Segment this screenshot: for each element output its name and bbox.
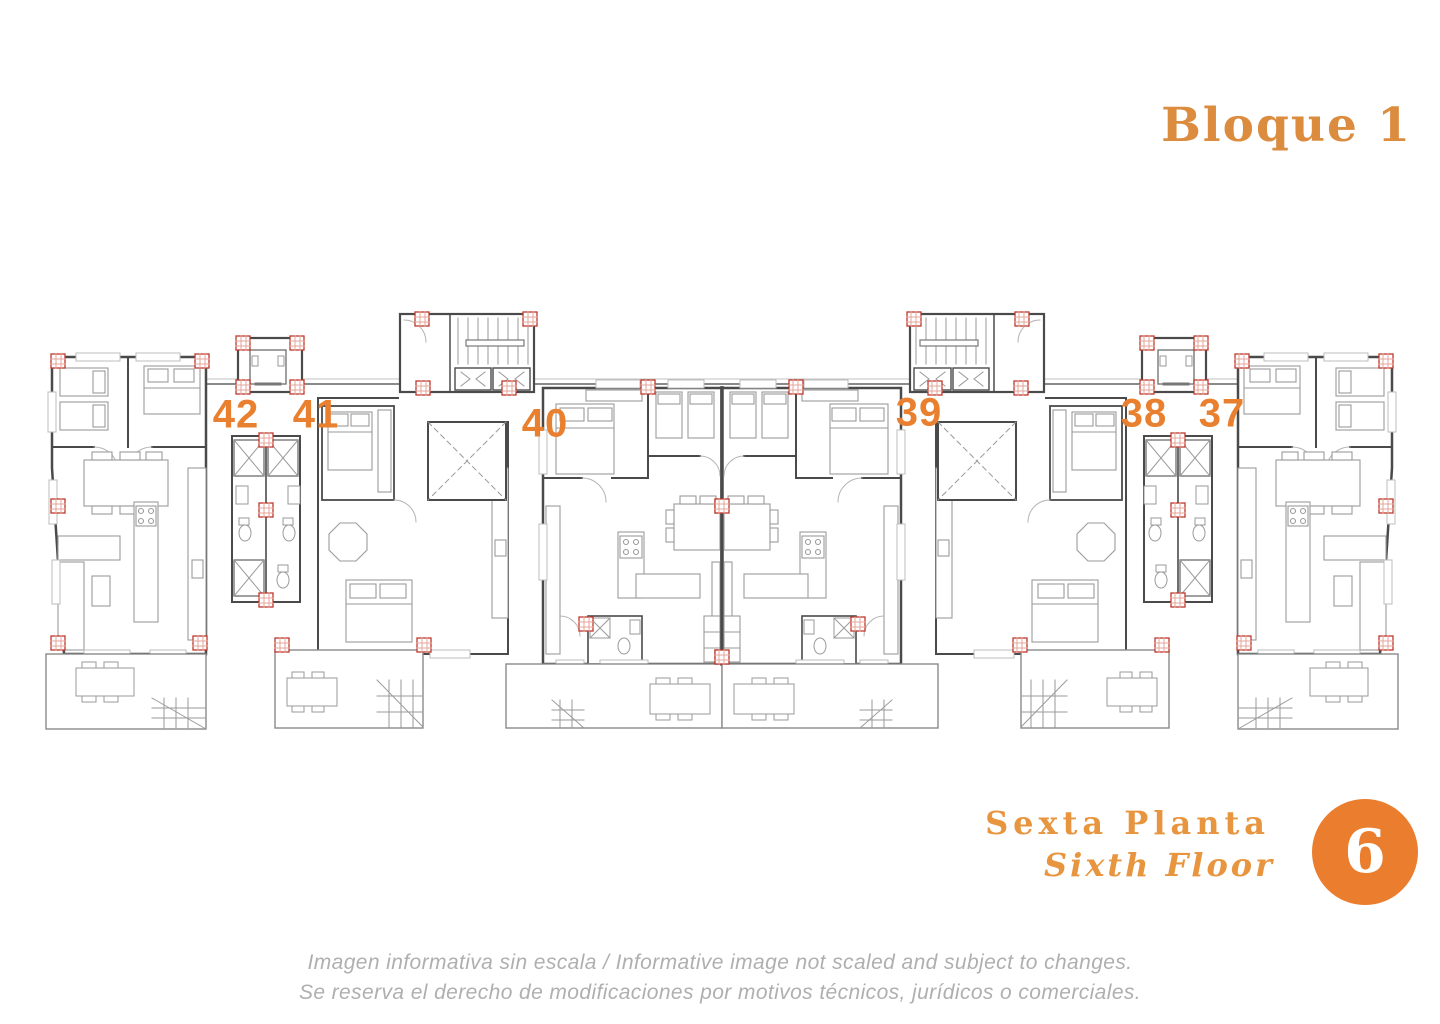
plan-right-half: [715, 312, 1398, 729]
disclaimer: Imagen informativa sin escala / Informat…: [0, 948, 1440, 1008]
plan-left-half: [46, 312, 729, 729]
floor-label-es: Sexta Planta: [985, 804, 1270, 842]
terrace-unit-40: [506, 664, 722, 728]
terrace-unit-42: [46, 654, 206, 729]
page: Bloque 1: [0, 0, 1440, 1024]
unit-label-39: 39: [896, 391, 943, 436]
bathroom-cluster-left: [232, 436, 300, 602]
floor-number: 6: [1344, 817, 1386, 887]
unit-label-37: 37: [1199, 392, 1246, 437]
unit-42-wing: [48, 353, 206, 658]
floor-number-badge: 6: [1312, 799, 1418, 905]
unit-label-41: 41: [293, 393, 340, 438]
floor-label-en: Sixth Floor: [1044, 846, 1275, 884]
elevator-core-left: [236, 336, 304, 394]
unit-label-42: 42: [213, 393, 260, 438]
unit-41: [318, 398, 508, 658]
disclaimer-line-2: Se reserva el derecho de modificaciones …: [0, 978, 1440, 1008]
stair-core-left: [400, 312, 537, 395]
terrace-unit-41: [275, 650, 423, 728]
unit-label-38: 38: [1121, 392, 1168, 437]
unit-label-40: 40: [522, 402, 569, 447]
disclaimer-line-1: Imagen informativa sin escala / Informat…: [0, 948, 1440, 978]
